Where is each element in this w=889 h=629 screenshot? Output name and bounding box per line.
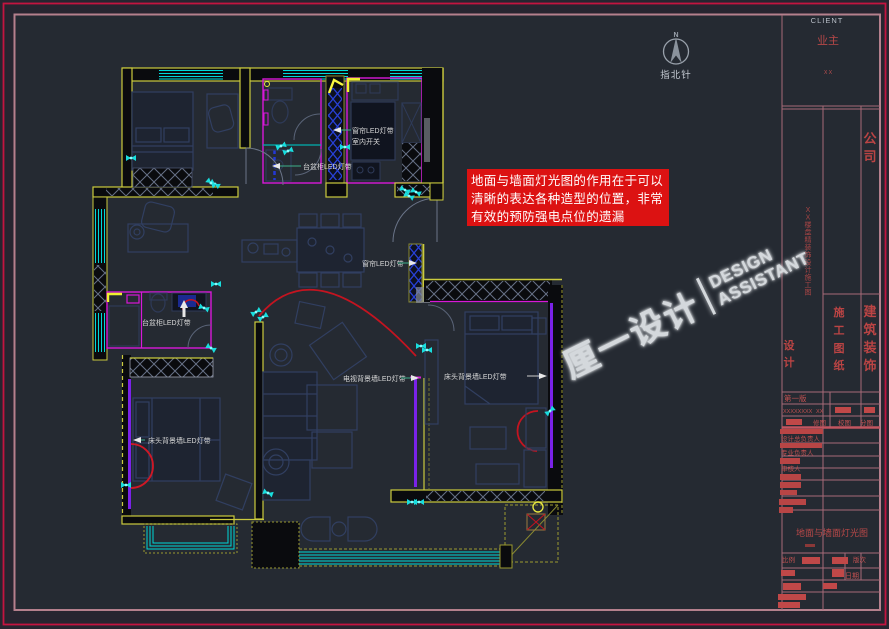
svg-text:CLIENT: CLIENT: [811, 16, 844, 25]
svg-text:审核人: 审核人: [781, 464, 801, 473]
svg-text:公: 公: [863, 131, 876, 146]
svg-text:筑: 筑: [863, 322, 876, 337]
svg-text:设: 设: [784, 338, 796, 352]
svg-text:窗帘LED灯带: 窗帘LED灯带: [352, 126, 394, 135]
svg-text:第一版: 第一版: [784, 393, 807, 403]
svg-text:施: 施: [805, 273, 812, 282]
svg-text:台盆柜LED灯带: 台盆柜LED灯带: [142, 318, 191, 327]
svg-text:地面与墙面灯光图: 地面与墙面灯光图: [796, 527, 868, 538]
svg-text:日期: 日期: [845, 572, 859, 580]
svg-text:楼: 楼: [805, 220, 812, 229]
svg-text:业主: 业主: [817, 34, 839, 47]
svg-text:饰: 饰: [863, 358, 876, 373]
svg-text:装: 装: [805, 243, 812, 252]
svg-text:图: 图: [834, 342, 845, 355]
svg-text:X: X: [806, 207, 811, 214]
svg-text:修图: 修图: [813, 418, 826, 427]
svg-text:床头背景墙LED灯带: 床头背景墙LED灯带: [148, 436, 211, 445]
svg-text:室内开关: 室内开关: [352, 137, 380, 146]
svg-text:版次: 版次: [853, 555, 867, 564]
svg-text:计: 计: [784, 355, 795, 369]
svg-text:X X: X X: [824, 70, 833, 76]
svg-text:司: 司: [863, 149, 876, 164]
svg-text:XX: XX: [816, 409, 824, 415]
svg-text:建: 建: [863, 304, 876, 319]
svg-text:台盆柜LED灯带: 台盆柜LED灯带: [303, 162, 352, 171]
svg-text:盘: 盘: [805, 228, 812, 237]
svg-text:计: 计: [805, 265, 812, 274]
svg-text:窗帘LED灯带: 窗帘LED灯带: [362, 259, 404, 268]
svg-text:专业负责人: 专业负责人: [781, 448, 814, 457]
svg-text:工: 工: [805, 282, 812, 289]
svg-text:X: X: [806, 215, 811, 222]
svg-text:电视背景墙LED灯带: 电视背景墙LED灯带: [343, 374, 406, 383]
svg-text:分图: 分图: [860, 418, 873, 427]
svg-text:图: 图: [805, 289, 812, 297]
svg-text:指北针: 指北针: [660, 69, 692, 81]
svg-text:装: 装: [862, 340, 876, 355]
svg-text:精: 精: [805, 235, 812, 244]
svg-text:施: 施: [834, 305, 845, 319]
svg-text:校图: 校图: [838, 418, 851, 427]
svg-text:N: N: [673, 32, 678, 39]
svg-text:工: 工: [834, 324, 845, 337]
svg-text:XXXXXXXX: XXXXXXXX: [783, 409, 813, 415]
svg-text:床头背景墙LED灯带: 床头背景墙LED灯带: [444, 372, 507, 381]
svg-text:设: 设: [805, 258, 812, 267]
svg-text:饰: 饰: [805, 250, 812, 259]
svg-text:设计总负责人: 设计总负责人: [781, 434, 821, 443]
svg-text:纸: 纸: [834, 358, 845, 372]
svg-text:比例: 比例: [782, 555, 795, 564]
